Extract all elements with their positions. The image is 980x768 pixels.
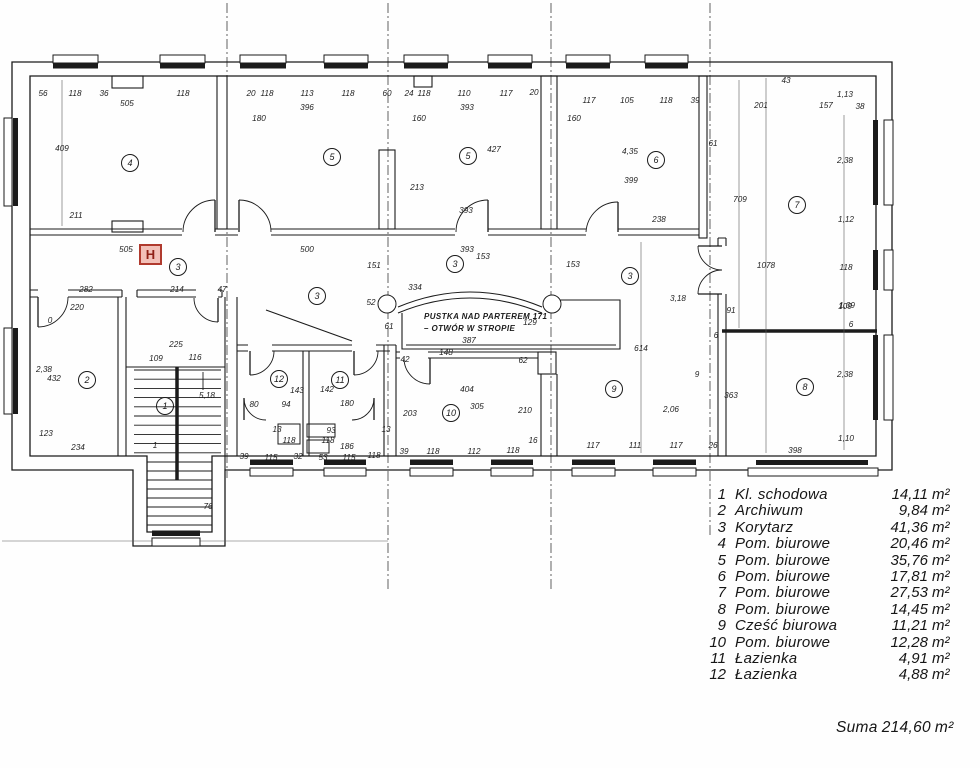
legend-room-area: 41,36 bbox=[870, 519, 928, 536]
legend-room-area: 20,46 bbox=[870, 535, 928, 552]
legend-room-area: 14,45 bbox=[870, 601, 928, 618]
dimension-label: 142 bbox=[320, 385, 334, 394]
dimension-label: 143 bbox=[290, 386, 304, 395]
dimension-label: 117 bbox=[499, 89, 512, 98]
legend-area-unit: m² bbox=[932, 584, 958, 601]
dimension-label: 118 bbox=[68, 89, 81, 98]
dimension-label: 220 bbox=[69, 303, 84, 312]
dimension-label: 115 bbox=[264, 453, 277, 462]
dimension-label: 4,35 bbox=[622, 147, 638, 156]
legend-area-unit: m² bbox=[932, 552, 958, 569]
legend-area-unit: m² bbox=[932, 519, 958, 536]
legend-room-number: 6 bbox=[704, 568, 726, 585]
legend-room-name: Pom. biurowe bbox=[735, 601, 870, 618]
legend-room-area: 17,81 bbox=[870, 568, 928, 585]
dimension-label: 123 bbox=[39, 429, 53, 438]
legend-area-unit: m² bbox=[932, 568, 958, 585]
dimension-label: 39 bbox=[239, 452, 249, 461]
legend-room-name: Cześć biurowa bbox=[735, 617, 870, 634]
dimension-label: 393 bbox=[460, 245, 474, 254]
right-windows bbox=[873, 120, 893, 420]
room-marker-number: 5 bbox=[465, 151, 471, 161]
dimension-label: 118 bbox=[260, 89, 273, 98]
dimension-label: 9 bbox=[695, 370, 700, 379]
dimension-label: 110 bbox=[457, 89, 470, 98]
legend-room-name: Pom. biurowe bbox=[735, 634, 870, 651]
legend-row: 11Łazienka4,91m² bbox=[704, 650, 958, 666]
dimension-label: 399 bbox=[624, 176, 638, 185]
dimension-label: 148 bbox=[439, 348, 453, 357]
column bbox=[543, 295, 561, 313]
legend-room-name: Kl. schodowa bbox=[735, 486, 870, 503]
dimension-label: 32 bbox=[293, 452, 303, 461]
dimension-label: 211 bbox=[68, 211, 82, 220]
dimension-label: 93 bbox=[326, 426, 336, 435]
legend-room-area: 27,53 bbox=[870, 584, 928, 601]
legend-row: 6Pom. biurowe17,81m² bbox=[704, 568, 958, 584]
legend-room-name: Łazienka bbox=[735, 650, 870, 667]
room-marker-number: 2 bbox=[83, 375, 89, 385]
legend-room-number: 9 bbox=[704, 617, 726, 634]
dimension-label: 117 bbox=[669, 441, 682, 450]
legend-row: 12Łazienka4,88m² bbox=[704, 666, 958, 682]
room-marker-number: 5 bbox=[329, 152, 335, 162]
dimension-label: 393 bbox=[460, 103, 474, 112]
legend-row: 5Pom. biurowe35,76m² bbox=[704, 552, 958, 568]
floor-plan-page: H PUSTKA NAD PARTEREM 171 – OTWÓR W STRO… bbox=[0, 0, 980, 768]
dimension-label: 2,06 bbox=[662, 405, 679, 414]
dimension-label: 1,12 bbox=[838, 215, 854, 224]
dimension-label: 186 bbox=[340, 442, 354, 451]
dimension-label: 61 bbox=[384, 322, 393, 331]
dimension-label: 105 bbox=[620, 96, 634, 105]
legend-room-area: 11,21 bbox=[870, 617, 928, 634]
total-area: Suma214,60m² bbox=[836, 719, 958, 737]
dimension-label: 282 bbox=[78, 285, 93, 294]
dimension-label: 118 bbox=[506, 446, 519, 455]
dimension-label: 234 bbox=[70, 443, 85, 452]
dimension-label: 2,38 bbox=[35, 365, 52, 374]
total-value: 214,60 bbox=[882, 719, 931, 736]
left-windows bbox=[4, 118, 18, 414]
legend-room-area: 12,28 bbox=[870, 634, 928, 651]
dimension-label: 94 bbox=[281, 400, 291, 409]
dimension-label: 13 bbox=[381, 425, 391, 434]
dimension-label: 500 bbox=[300, 245, 314, 254]
dimension-label: 61 bbox=[708, 139, 717, 148]
dimension-label: 0 bbox=[48, 316, 53, 325]
dimension-label: 6 bbox=[849, 320, 854, 329]
dimension-label: 214 bbox=[169, 285, 184, 294]
legend-room-name: Pom. biurowe bbox=[735, 552, 870, 569]
dimension-label: 129 bbox=[523, 318, 537, 327]
dimension-label: 709 bbox=[733, 195, 747, 204]
dimension-label: 614 bbox=[634, 344, 648, 353]
legend-row: 8Pom. biurowe14,45m² bbox=[704, 601, 958, 617]
hydrant-letter: H bbox=[146, 247, 155, 262]
dimension-label: 427 bbox=[487, 145, 501, 154]
dimension-label: 113 bbox=[300, 89, 313, 98]
dimension-label: 409 bbox=[55, 144, 69, 153]
legend-area-unit: m² bbox=[932, 617, 958, 634]
room-marker-number: 10 bbox=[446, 408, 456, 418]
legend-room-number: 2 bbox=[704, 502, 726, 519]
dimension-label: 6 bbox=[714, 331, 719, 340]
dimension-label: 52 bbox=[366, 298, 376, 307]
dimension-label: 91 bbox=[726, 306, 735, 315]
dimension-label: 118 bbox=[839, 263, 852, 272]
dimension-label: 20 bbox=[245, 89, 256, 98]
legend: 1Kl. schodowa14,11m²2Archiwum9,84m²3Kory… bbox=[704, 486, 958, 683]
legend-room-name: Archiwum bbox=[735, 502, 870, 519]
dimension-label: 117 bbox=[586, 441, 599, 450]
legend-room-number: 11 bbox=[704, 650, 726, 667]
legend-room-area: 9,84 bbox=[870, 502, 928, 519]
room-marker-number: 7 bbox=[794, 200, 800, 210]
total-unit: m² bbox=[935, 719, 954, 736]
dimension-label: 39 bbox=[399, 447, 409, 456]
dimension-label: 238 bbox=[651, 215, 666, 224]
dimension-label: 118 bbox=[417, 89, 430, 98]
legend-room-number: 12 bbox=[704, 666, 726, 683]
dimension-label: 60 bbox=[382, 89, 392, 98]
dimension-label: 210 bbox=[517, 406, 532, 415]
room-marker-number: 3 bbox=[314, 291, 319, 301]
dimension-label: 116 bbox=[188, 353, 201, 362]
dimension-label: 201 bbox=[753, 101, 768, 110]
dimension-label: 53 bbox=[318, 453, 328, 462]
dimension-label: 62 bbox=[518, 356, 528, 365]
dimension-label: 118 bbox=[176, 89, 189, 98]
legend-row: 1Kl. schodowa14,11m² bbox=[704, 486, 958, 502]
dimension-label: 3,18 bbox=[670, 294, 686, 303]
dimension-label: 2,38 bbox=[836, 370, 853, 379]
hydrant-marker: H bbox=[140, 245, 161, 264]
room-marker-number: 12 bbox=[274, 374, 284, 384]
windows bbox=[4, 55, 893, 546]
column bbox=[378, 295, 396, 313]
dimension-label: 157 bbox=[819, 101, 833, 110]
legend-row: 4Pom. biurowe20,46m² bbox=[704, 535, 958, 551]
dimension-label: 118 bbox=[321, 436, 334, 445]
dimension-label: 334 bbox=[408, 283, 422, 292]
room-marker-number: 3 bbox=[452, 259, 457, 269]
legend-room-number: 3 bbox=[704, 519, 726, 536]
dimension-label: 39 bbox=[690, 96, 700, 105]
dimension-label: 24 bbox=[403, 89, 414, 98]
dimension-label: 26 bbox=[707, 441, 718, 450]
legend-row: 2Archiwum9,84m² bbox=[704, 502, 958, 518]
legend-area-unit: m² bbox=[932, 535, 958, 552]
dimension-label: 111 bbox=[629, 441, 641, 450]
dimension-label: 1 bbox=[153, 441, 158, 450]
dimension-label: 112 bbox=[467, 447, 480, 456]
dimension-label: 203 bbox=[402, 409, 417, 418]
dimension-label: 404 bbox=[460, 385, 474, 394]
legend-area-unit: m² bbox=[932, 650, 958, 667]
dimension-label: 56 bbox=[38, 89, 48, 98]
legend-area-unit: m² bbox=[932, 502, 958, 519]
dimension-label: 20 bbox=[528, 88, 539, 97]
dimension-label: 118 bbox=[341, 89, 354, 98]
dimension-label: 118 bbox=[426, 447, 439, 456]
dimension-label: 36 bbox=[99, 89, 109, 98]
legend-room-number: 4 bbox=[704, 535, 726, 552]
legend-room-number: 8 bbox=[704, 601, 726, 618]
dimension-label: 76 bbox=[203, 502, 213, 511]
room-marker-number: 4 bbox=[127, 158, 132, 168]
legend-room-number: 7 bbox=[704, 584, 726, 601]
dimension-label: 505 bbox=[119, 245, 133, 254]
legend-area-unit: m² bbox=[932, 666, 958, 683]
legend-room-number: 10 bbox=[704, 634, 726, 651]
dimension-label: 432 bbox=[47, 374, 61, 383]
dimension-label: 2,38 bbox=[836, 156, 853, 165]
room-marker-number: 6 bbox=[653, 155, 658, 165]
dimension-label: 1,13 bbox=[837, 90, 853, 99]
dimension-label: 115 bbox=[342, 453, 355, 462]
dimension-label: 16 bbox=[528, 436, 538, 445]
dimension-label: 1078 bbox=[757, 261, 776, 270]
room-marker-number: 3 bbox=[175, 262, 180, 272]
legend-row: 10Pom. biurowe12,28m² bbox=[704, 634, 958, 650]
dimension-label: 180 bbox=[340, 399, 354, 408]
legend-area-unit: m² bbox=[932, 634, 958, 651]
dimension-label: 5,18 bbox=[199, 391, 215, 400]
total-label: Suma bbox=[836, 719, 878, 736]
dimension-label: 38 bbox=[855, 102, 865, 111]
room-marker-number: 1 bbox=[162, 401, 167, 411]
dimension-label: 153 bbox=[476, 252, 490, 261]
legend-room-name: Pom. biurowe bbox=[735, 535, 870, 552]
dimension-label: 43 bbox=[781, 76, 791, 85]
dimension-label: 505 bbox=[120, 99, 134, 108]
dimension-label: 80 bbox=[249, 400, 259, 409]
dimension-label: 109 bbox=[149, 354, 163, 363]
legend-room-name: Pom. biurowe bbox=[735, 568, 870, 585]
dimension-label: 180 bbox=[252, 114, 266, 123]
room-markers: 4556789101112123333 bbox=[79, 148, 814, 422]
dimension-label: 393 bbox=[459, 206, 473, 215]
dimension-label: 305 bbox=[470, 402, 484, 411]
legend-row: 3Korytarz41,36m² bbox=[704, 519, 958, 535]
dimension-label: 118 bbox=[367, 451, 380, 460]
dimension-label: 398 bbox=[788, 446, 802, 455]
room-marker-number: 8 bbox=[802, 382, 807, 392]
dimension-label: 1,10 bbox=[838, 434, 854, 443]
dimension-label: 153 bbox=[566, 260, 580, 269]
legend-room-number: 1 bbox=[704, 486, 726, 503]
dimension-label: 42 bbox=[400, 355, 410, 364]
legend-room-number: 5 bbox=[704, 552, 726, 569]
legend-room-name: Korytarz bbox=[735, 519, 870, 536]
legend-row: 9Cześć biurowa11,21m² bbox=[704, 617, 958, 633]
dimension-label: 396 bbox=[300, 103, 314, 112]
legend-room-area: 35,76 bbox=[870, 552, 928, 569]
dimension-label: 118 bbox=[659, 96, 672, 105]
dimension-label: 13 bbox=[272, 425, 282, 434]
dimension-label: 109 bbox=[838, 302, 852, 311]
void-note-line2: – OTWÓR W STROPIE bbox=[424, 324, 516, 333]
dimension-label: 117 bbox=[582, 96, 595, 105]
dimension-label: 387 bbox=[462, 336, 476, 345]
legend-area-unit: m² bbox=[932, 601, 958, 618]
legend-room-area: 4,91 bbox=[870, 650, 928, 667]
dimension-label: 118 bbox=[282, 436, 295, 445]
room-marker-number: 11 bbox=[335, 375, 344, 385]
room-marker-number: 9 bbox=[611, 384, 616, 394]
legend-area-unit: m² bbox=[932, 486, 958, 503]
dimension-label: 160 bbox=[412, 114, 426, 123]
dimension-label: 363 bbox=[724, 391, 738, 400]
dimension-label: 160 bbox=[567, 114, 581, 123]
dimension-label: 151 bbox=[367, 261, 381, 270]
dimension-label: 213 bbox=[409, 183, 424, 192]
dimension-label: 47 bbox=[217, 285, 227, 294]
dimension-label: 225 bbox=[168, 340, 183, 349]
legend-room-area: 4,88 bbox=[870, 666, 928, 683]
legend-room-name: Łazienka bbox=[735, 666, 870, 683]
legend-room-name: Pom. biurowe bbox=[735, 584, 870, 601]
room-marker-number: 3 bbox=[627, 271, 632, 281]
legend-room-area: 14,11 bbox=[870, 486, 928, 503]
legend-row: 7Pom. biurowe27,53m² bbox=[704, 584, 958, 600]
